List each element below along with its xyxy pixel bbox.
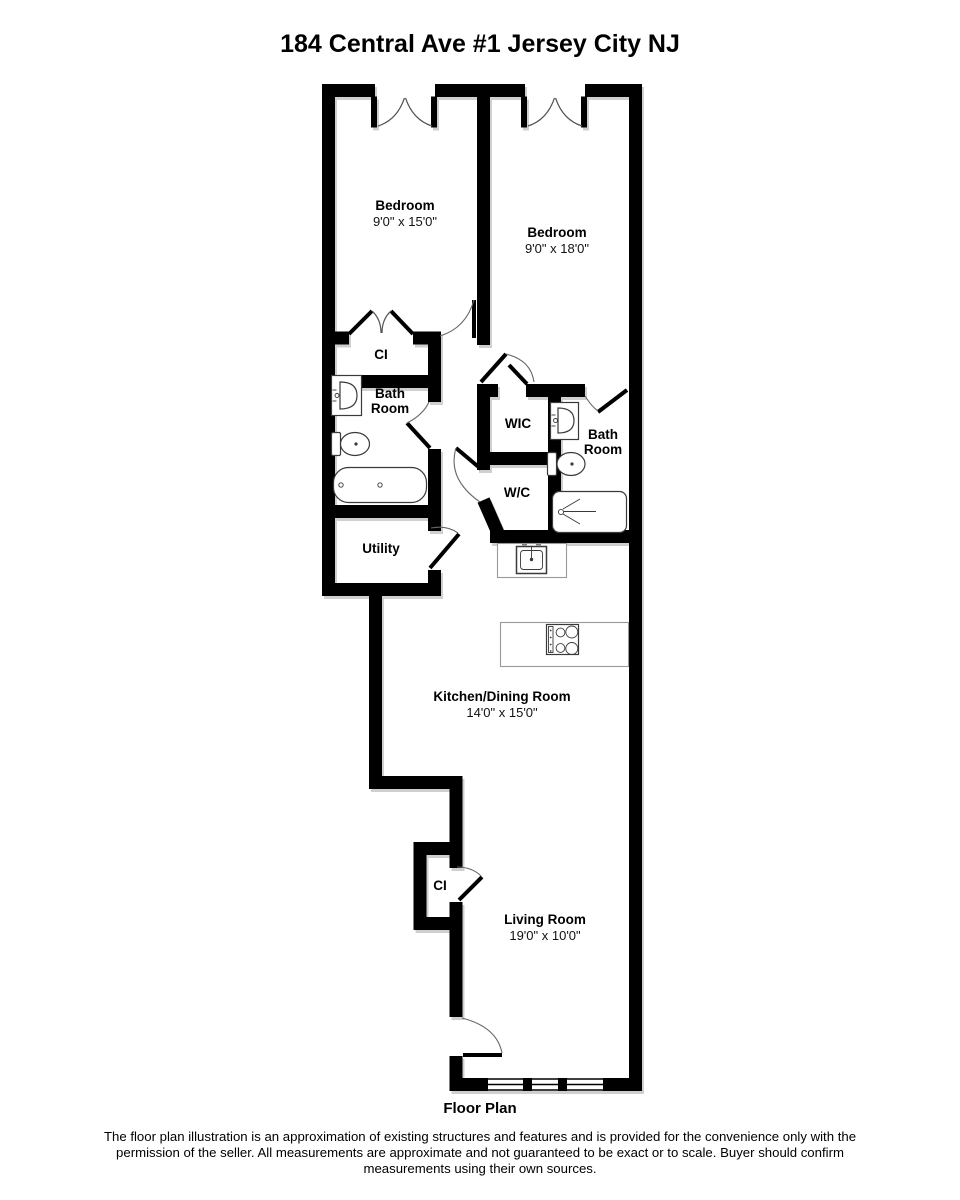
shower-icon: [553, 492, 627, 533]
triple-window-icon: [488, 1078, 603, 1091]
door-icon-bathroom-left: [407, 402, 430, 448]
living-room-name: Living Room: [504, 912, 586, 927]
disclaimer-line-3: measurements using their own sources.: [80, 1161, 880, 1177]
bathroom-left-name-line1: Bath: [375, 386, 405, 401]
wc-name: W/C: [504, 485, 530, 500]
bedroom-right-dims: 9'0" x 18'0": [525, 241, 589, 256]
door-icon-bathroom-right: [585, 390, 627, 412]
toilet-icon-bath-right: [548, 453, 586, 476]
entry-door-icon: [462, 1018, 502, 1055]
bathtub-icon: [334, 468, 427, 503]
bedroom-right-name: Bedroom: [527, 225, 586, 240]
bedroom-left-name: Bedroom: [375, 198, 434, 213]
window-icon-bedroom-right: [528, 98, 582, 126]
toilet-icon-bath-left: [332, 433, 370, 456]
door-icon-closet-living: [457, 867, 482, 900]
bathroom-right-name-line1: Bath: [588, 427, 618, 442]
kitchen-dining-name: Kitchen/Dining Room: [433, 689, 570, 704]
kitchen-dining-dims: 14'0" x 15'0": [466, 705, 538, 720]
disclaimer-text: The floor plan illustration is an approx…: [80, 1129, 880, 1178]
closet-living-name: CI: [433, 878, 447, 893]
door-icon-utility: [430, 527, 459, 568]
kitchen-sink-icon: [498, 544, 567, 578]
floor-plan-caption: Floor Plan: [380, 1100, 580, 1117]
bathroom-left-name-line2: Room: [371, 401, 409, 416]
disclaimer-line-2: permission of the seller. All measuremen…: [80, 1145, 880, 1161]
floor-plan-page: 184 Central Ave #1 Jersey City NJ: [0, 0, 960, 1200]
walls: [322, 84, 642, 1091]
bifold-door-icon-closet-upper: [349, 311, 413, 334]
wic-name: WIC: [505, 416, 531, 431]
pedestal-sink-icon-bath-left: [332, 376, 362, 416]
pedestal-sink-icon-bath-right: [551, 403, 579, 440]
window-icon-bedroom-left: [378, 98, 432, 126]
bathroom-right-name-line2: Room: [584, 442, 622, 457]
bedroom-left-dims: 9'0" x 15'0": [373, 214, 437, 229]
floor-plan-drawing: Bedroom 9'0" x 15'0" Bedroom 9'0" x 18'0…: [0, 0, 960, 1200]
utility-name: Utility: [362, 541, 400, 556]
living-room-dims: 19'0" x 10'0": [509, 928, 581, 943]
door-icon-hall-and-wic: [481, 354, 534, 384]
door-icon-wc: [454, 448, 481, 502]
closet-upper-name: CI: [374, 347, 388, 362]
door-icon-bedroom-left: [440, 300, 474, 338]
disclaimer-line-1: The floor plan illustration is an approx…: [80, 1129, 880, 1145]
cooktop-island-icon: [501, 623, 629, 667]
